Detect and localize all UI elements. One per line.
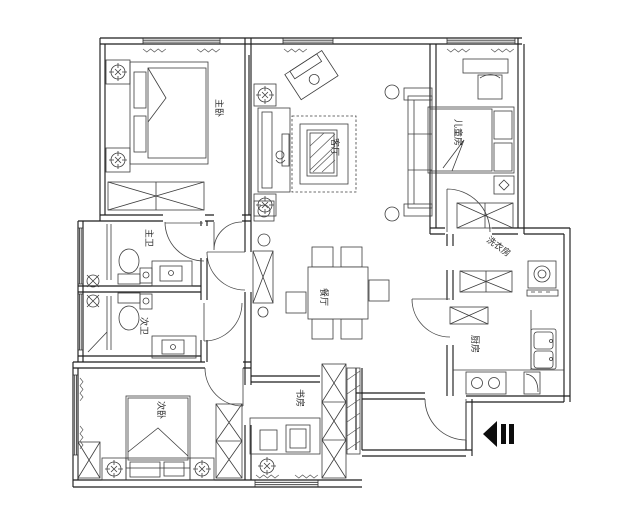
- burner: [489, 378, 500, 389]
- toilet-tank: [118, 274, 140, 284]
- desk-chair: [478, 75, 502, 99]
- vanity: [152, 336, 196, 358]
- dining-chair: [341, 319, 362, 339]
- dining-chair: [312, 319, 333, 339]
- plant: [385, 85, 399, 99]
- door-master-bathroom: [165, 222, 204, 261]
- armchair: [285, 51, 338, 100]
- pillow: [494, 111, 512, 139]
- room-label-second-bedroom: 次卧: [155, 401, 167, 419]
- toilet-tank: [118, 293, 140, 303]
- door-master-bedroom: [214, 222, 242, 250]
- dining-chair: [369, 280, 389, 301]
- bedside-cabinet: [494, 176, 514, 194]
- entrance-arrow-icon: [483, 421, 514, 447]
- vanity: [152, 261, 192, 286]
- door-second-bedroom: [205, 368, 243, 406]
- room-label-master-bedroom: 主卧: [213, 99, 225, 117]
- laundry-furniture: [450, 261, 558, 324]
- tv-cabinet: [258, 108, 290, 192]
- door-kitchen: [412, 299, 450, 337]
- living-room-furniture: [254, 51, 432, 221]
- room-label-dining-room: 餐厅: [318, 288, 330, 306]
- person-figure: [276, 151, 284, 159]
- sink: [160, 266, 182, 281]
- stove: [466, 372, 506, 394]
- walls: [73, 38, 570, 487]
- dining-furniture: [286, 247, 389, 339]
- shower-screen: [88, 296, 111, 352]
- sink: [162, 340, 184, 354]
- plant: [258, 307, 268, 317]
- dining-chair: [341, 247, 362, 267]
- study-furniture: [250, 364, 360, 478]
- tv: [282, 134, 289, 166]
- monitor: [260, 430, 277, 450]
- shower-screen: [107, 224, 111, 280]
- water-heater: [528, 261, 556, 288]
- pillow: [134, 116, 146, 152]
- pillow: [494, 143, 512, 171]
- pillow: [134, 72, 146, 108]
- pedestal: [140, 294, 152, 309]
- kids-room-furniture: [428, 59, 514, 228]
- dining-chair: [312, 247, 333, 267]
- room-label-second-bathroom: 次卫: [138, 317, 150, 335]
- bed: [428, 107, 514, 173]
- door-second-bathroom: [204, 303, 242, 341]
- duct-shaft: [347, 368, 360, 454]
- room-label-kitchen: 厨房: [469, 335, 481, 353]
- floor-outlet: [258, 457, 276, 475]
- room-label-laundry-room: 洗衣房: [484, 234, 513, 260]
- toilet: [119, 249, 139, 273]
- plant: [385, 207, 399, 221]
- desk: [463, 59, 508, 73]
- desk: [250, 418, 320, 454]
- room-label-living-room: 客厅: [329, 138, 341, 156]
- door-kids-room: [447, 189, 490, 232]
- curtain-zigzag: [143, 49, 166, 52]
- room-label-master-bathroom: 主卫: [143, 229, 155, 247]
- toilet: [119, 306, 139, 330]
- door-entrance: [425, 399, 466, 440]
- floor-plan-canvas: 主卧 客厅 儿童房 主卫 次卫 餐厅 洗衣房 厨房 次卧 书房: [0, 0, 641, 526]
- control-strip: [527, 290, 558, 296]
- dining-table: [308, 267, 368, 319]
- hall-cabinets: [253, 201, 274, 317]
- room-label-kids-room: 儿童房: [452, 119, 464, 146]
- burner: [472, 378, 483, 389]
- floor-drain: [87, 275, 99, 287]
- plant: [258, 234, 270, 246]
- dining-chair: [286, 292, 306, 313]
- bed: [130, 62, 208, 164]
- master-bedroom-furniture: [106, 60, 208, 210]
- door-hallway: [207, 252, 245, 290]
- room-label-study: 书房: [294, 389, 306, 407]
- master-bathroom-fixtures: [87, 224, 192, 287]
- pedestal: [140, 268, 152, 283]
- floor-drain: [87, 295, 99, 307]
